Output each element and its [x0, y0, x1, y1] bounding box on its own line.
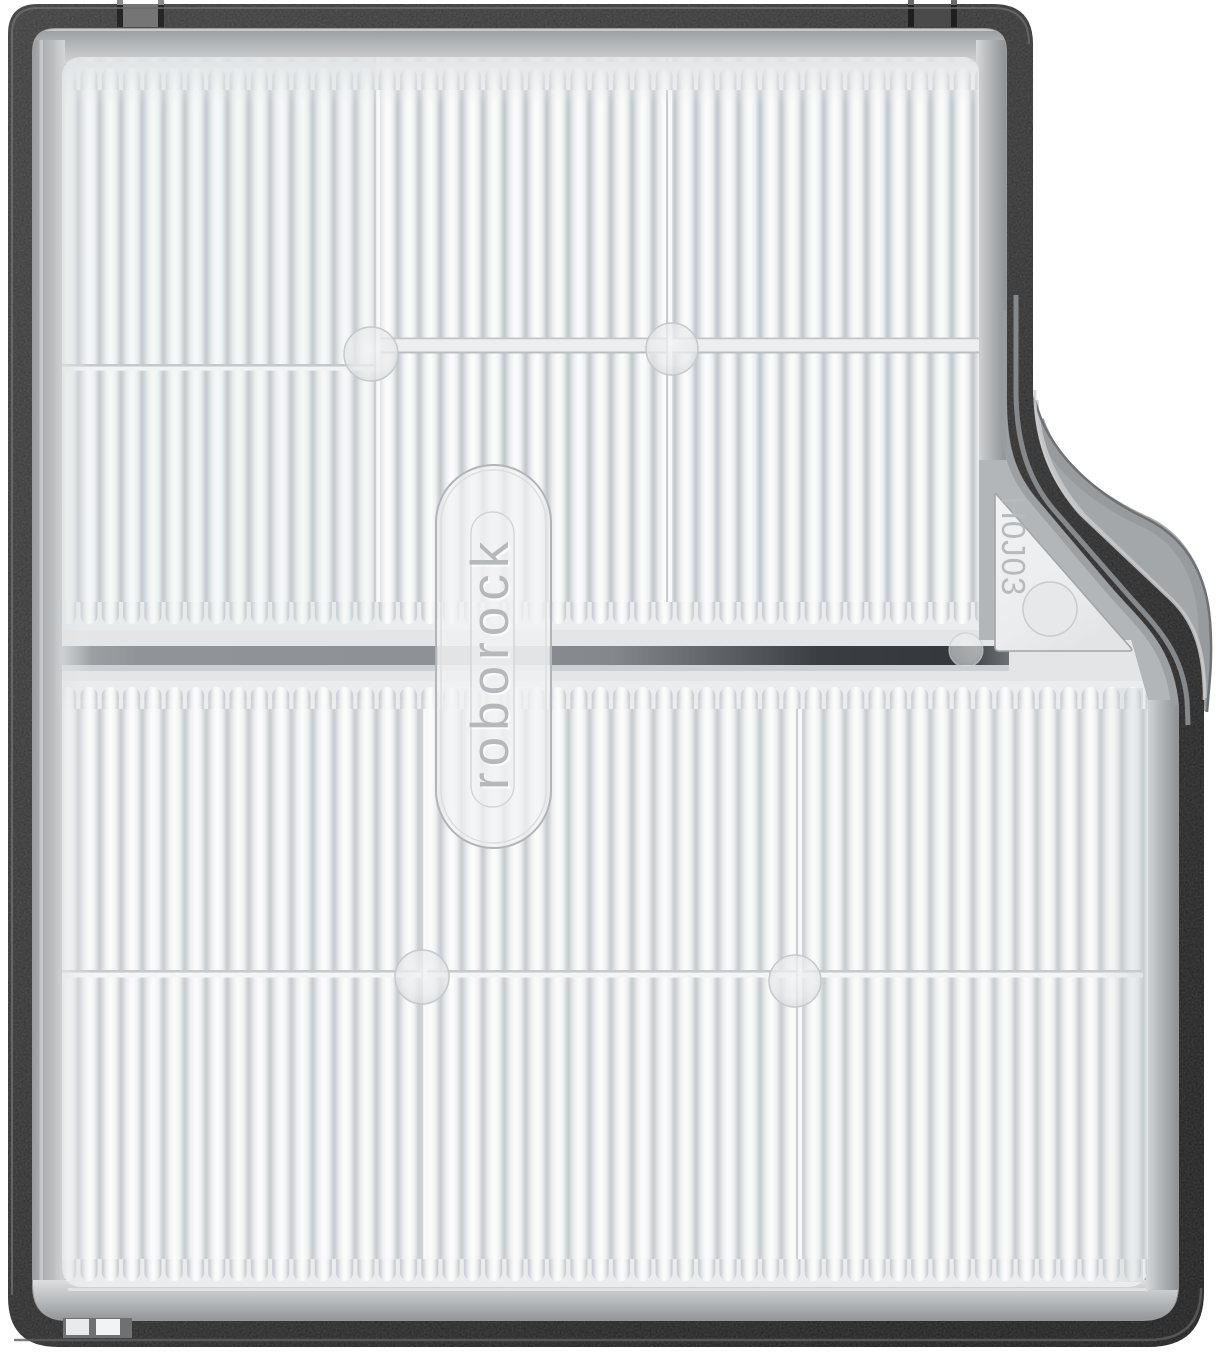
svg-text:H0J03: H0J03 — [995, 496, 1032, 596]
svg-text:roborock: roborock — [461, 536, 520, 790]
